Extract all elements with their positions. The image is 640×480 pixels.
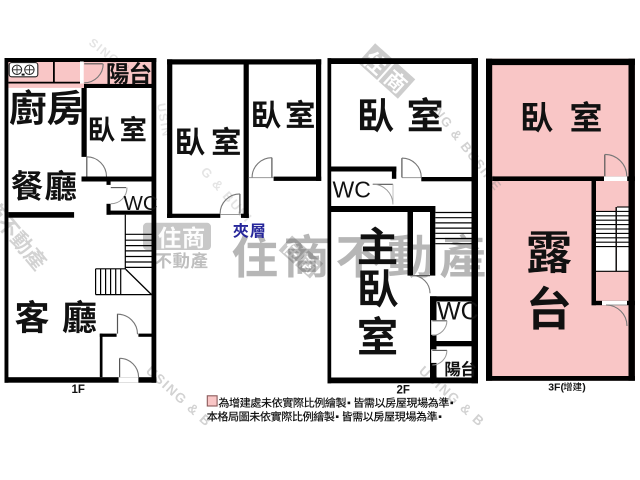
svg-text:): )	[582, 382, 586, 394]
svg-text:WC: WC	[437, 298, 479, 326]
svg-text:1F: 1F	[72, 384, 85, 396]
svg-text:WC: WC	[124, 192, 158, 215]
svg-text:WC: WC	[333, 177, 371, 203]
svg-text:2F: 2F	[397, 384, 410, 396]
svg-text:3F(: 3F(	[548, 382, 564, 394]
